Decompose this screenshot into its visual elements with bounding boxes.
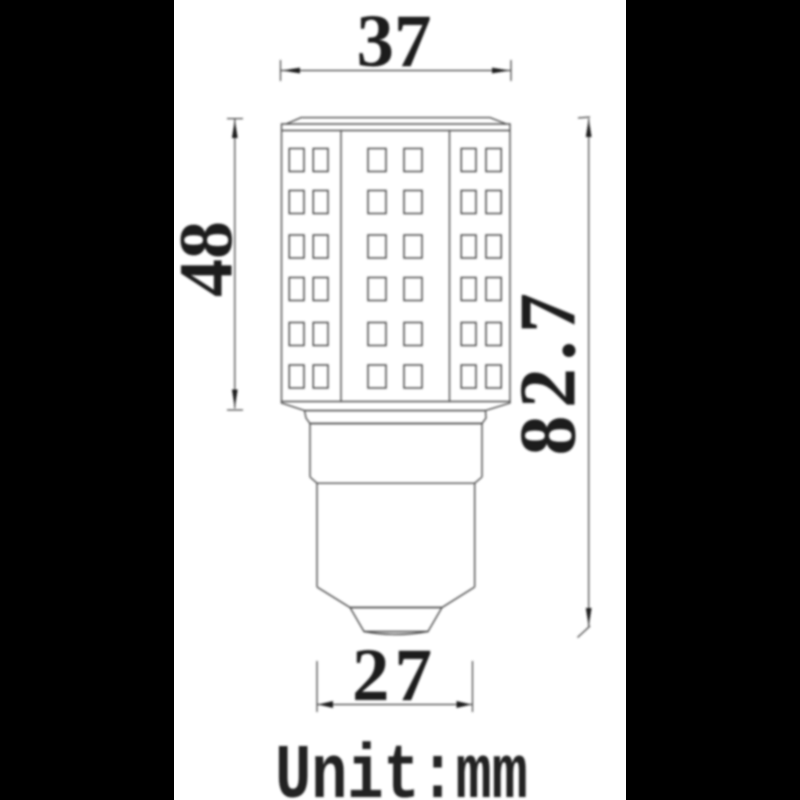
svg-text:82.7: 82.7 (504, 286, 592, 456)
svg-text:Unit:mm: Unit:mm (275, 734, 528, 800)
svg-text:48: 48 (164, 221, 248, 297)
